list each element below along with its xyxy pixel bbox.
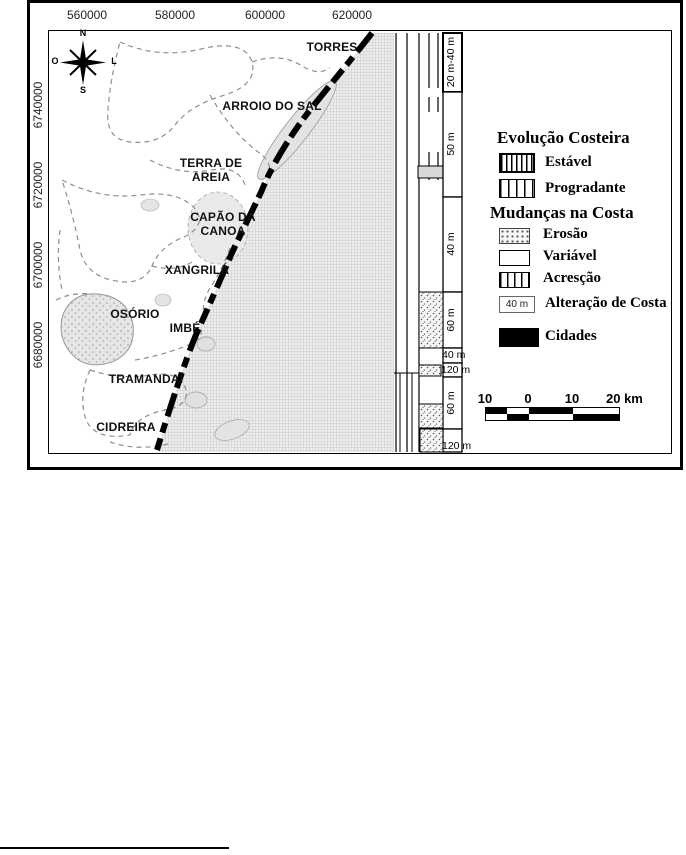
compass-west-label: O	[48, 56, 62, 66]
axis-label-left-3: 6700000	[31, 230, 47, 300]
legend-swatch-alteracao: 40 m	[499, 296, 535, 313]
strip-seg1-label: 20 m-40 m	[445, 27, 459, 97]
compass-north-label: N	[76, 28, 90, 38]
scalebar-num-4: 20 km	[606, 391, 662, 406]
legend-label-erosao: Erosão	[543, 226, 588, 243]
legend-title-mudancas: Mudanças na Costa	[490, 203, 634, 223]
strip-seg8-label: 120 m	[442, 440, 471, 452]
legend-swatch-estavel	[499, 153, 535, 173]
scale-bar-bottom-band	[486, 414, 619, 420]
legend-swatch-alteracao-value: 40 m	[506, 299, 528, 310]
scalebar-num-3: 10	[560, 391, 584, 406]
city-label-line1: CAPÃO DA	[183, 210, 263, 224]
compass-south-label: S	[76, 85, 90, 95]
footnote-rule	[0, 847, 229, 849]
legend-swatch-variavel	[499, 250, 530, 266]
city-label-tramandai: TRAMANDAÍ	[105, 372, 187, 386]
scalebar-num-2: 0	[516, 391, 540, 406]
city-label-line2: AREIA	[171, 170, 251, 184]
scalebar-num-1: 10	[473, 391, 497, 406]
strip-seg7-label: 60 m	[445, 368, 459, 438]
axis-label-left-4: 6680000	[31, 310, 47, 380]
legend-label-progradante: Progradante	[545, 180, 626, 197]
axis-label-top-4: 620000	[320, 8, 384, 22]
strip-variable-box	[418, 166, 443, 178]
legend-label-cidades: Cidades	[545, 328, 597, 345]
legend-title-evolucao: Evolução Costeira	[497, 128, 630, 148]
city-label-imbe: IMBÉ	[164, 321, 206, 335]
erosion-boxes	[419, 292, 443, 452]
city-label-line2: CANOA	[183, 224, 263, 238]
city-label-cidreira: CIDREIRA	[92, 420, 160, 434]
compass-rose	[60, 40, 106, 85]
document-page: 560000 580000 600000 620000 6740000 6720…	[0, 0, 686, 855]
city-label-capao-da-canoa: CAPÃO DA CANOA	[183, 210, 263, 238]
legend-swatch-progradante	[499, 179, 535, 198]
coastal-strips	[394, 33, 438, 452]
legend-label-variavel: Variável	[543, 248, 597, 265]
axis-label-top-2: 580000	[143, 8, 207, 22]
legend-label-alteracao: Alteração de Costa	[545, 295, 667, 312]
axis-label-top-1: 560000	[55, 8, 119, 22]
strip-seg3-label: 40 m	[445, 209, 459, 279]
city-label-xangrila: XANGRILÁ	[161, 263, 233, 277]
city-label-osorio: OSÓRIO	[105, 307, 165, 321]
axis-label-left-2: 6720000	[31, 150, 47, 220]
strip-seg2-label: 50 m	[445, 109, 459, 179]
city-label-torres: TORRES	[301, 40, 363, 54]
scale-bar	[485, 407, 620, 421]
legend-swatch-cidades	[499, 328, 539, 347]
strip-seg5-label: 40 m	[442, 349, 465, 361]
legend-swatch-erosao	[499, 228, 530, 244]
city-label-line1: TERRA DE	[171, 156, 251, 170]
strip-seg4-label: 60 m	[445, 285, 459, 355]
legend-label-estavel: Estável	[545, 154, 592, 171]
legend-swatch-acrescao	[499, 272, 530, 288]
axis-label-top-3: 600000	[233, 8, 297, 22]
city-label-arroio: ARROIO DO SAL	[217, 99, 327, 113]
axis-label-left-1: 6740000	[31, 70, 47, 140]
legend-label-acrescao: Acresção	[543, 270, 601, 287]
compass-east-label: L	[107, 56, 121, 66]
city-label-terra-de-areia: TERRA DE AREIA	[171, 156, 251, 184]
